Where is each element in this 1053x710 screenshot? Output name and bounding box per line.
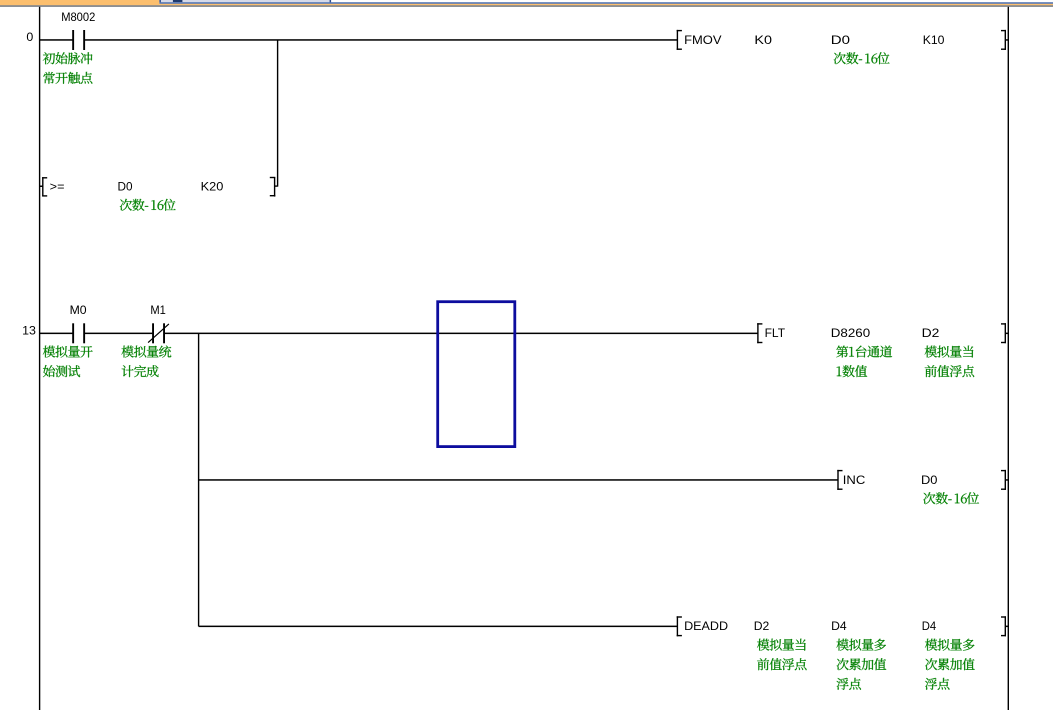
svg-text:M1: M1 (150, 303, 166, 317)
svg-text:DEADD: DEADD (684, 619, 728, 633)
svg-text:M8002: M8002 (61, 10, 95, 24)
svg-text:>=: >= (50, 179, 65, 193)
svg-text:D4: D4 (922, 619, 937, 633)
svg-text:INC: INC (843, 473, 866, 487)
svg-text:K0: K0 (754, 33, 772, 47)
svg-text:0: 0 (26, 30, 33, 44)
svg-text:D2: D2 (922, 326, 940, 340)
svg-text:K20: K20 (201, 179, 224, 193)
svg-text:D8260: D8260 (831, 326, 870, 340)
svg-text:K10: K10 (923, 33, 945, 47)
svg-text:D0: D0 (831, 33, 850, 47)
svg-text:13: 13 (22, 323, 36, 337)
svg-text:M0: M0 (70, 303, 87, 317)
svg-text:FMOV: FMOV (684, 33, 722, 47)
svg-text:D2: D2 (754, 619, 770, 633)
svg-text:FLT: FLT (765, 326, 786, 340)
svg-text:D0: D0 (921, 473, 938, 487)
svg-text:D0: D0 (118, 179, 133, 193)
svg-text:D4: D4 (831, 619, 847, 633)
